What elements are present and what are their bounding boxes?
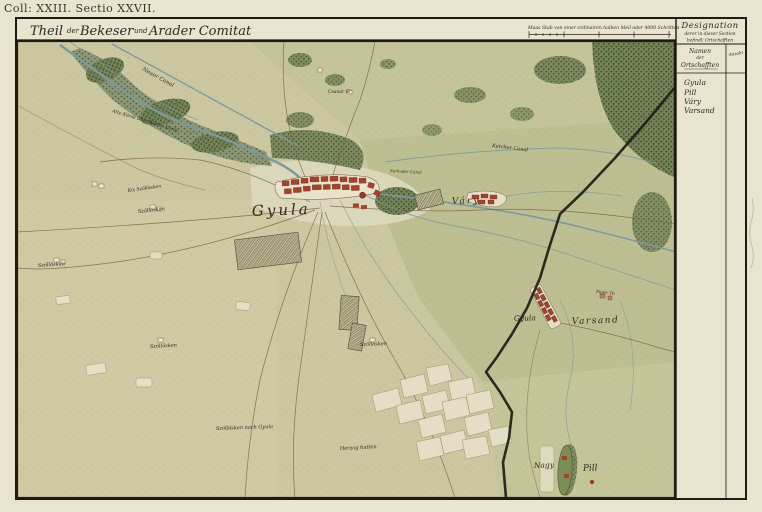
map-canvas: Gyula Váry Gyula Varsand Nagy Pill Neuer…	[0, 0, 762, 512]
designation-subtitle-1: derer in dieser Section	[684, 32, 735, 37]
title-part-5: Arader Comitat	[148, 24, 252, 39]
col-header-der: der	[696, 56, 704, 61]
col-header-namen: Namen	[688, 48, 711, 55]
title-part-2: der	[67, 27, 80, 35]
label-csanar-er: Csanár Er	[328, 88, 352, 95]
title-part-3: Bekeser	[79, 24, 134, 39]
place-row-3: Varsand	[684, 106, 715, 115]
map-sheet: Gyula Váry Gyula Varsand Nagy Pill Neuer…	[0, 0, 762, 512]
scale-text: Maas Stab von einer ordinairen halben Me…	[527, 25, 679, 31]
label-vary: Váry	[452, 195, 481, 207]
label-nagy: Nagy	[533, 460, 555, 470]
label-gyula-varsand-1: Gyula	[514, 313, 536, 323]
col-header-ortschafften: Ortschafften	[681, 62, 719, 69]
map-content: Gyula Váry Gyula Varsand Nagy Pill Neuer…	[17, 41, 676, 498]
place-row-2: Váry	[684, 97, 702, 106]
place-row-0: Gyula	[684, 78, 706, 87]
title-part-4: und	[134, 27, 148, 35]
designation-subtitle-2: befindl: Ortschafften	[687, 39, 733, 44]
gyula-castle-mark	[359, 192, 365, 198]
label-field-3: Szöllösken	[360, 341, 387, 348]
title-part-1: Theil	[30, 24, 63, 39]
designation-title: Designation	[680, 21, 738, 31]
label-gyula: Gyula	[252, 200, 311, 220]
label-gyula-varsand-2: Varsand	[572, 315, 620, 327]
sheet-number: Coll: XXIII. Sectio XXVII.	[4, 2, 156, 15]
place-row-1: Pill	[683, 88, 697, 97]
label-pill: Pill	[582, 463, 598, 474]
